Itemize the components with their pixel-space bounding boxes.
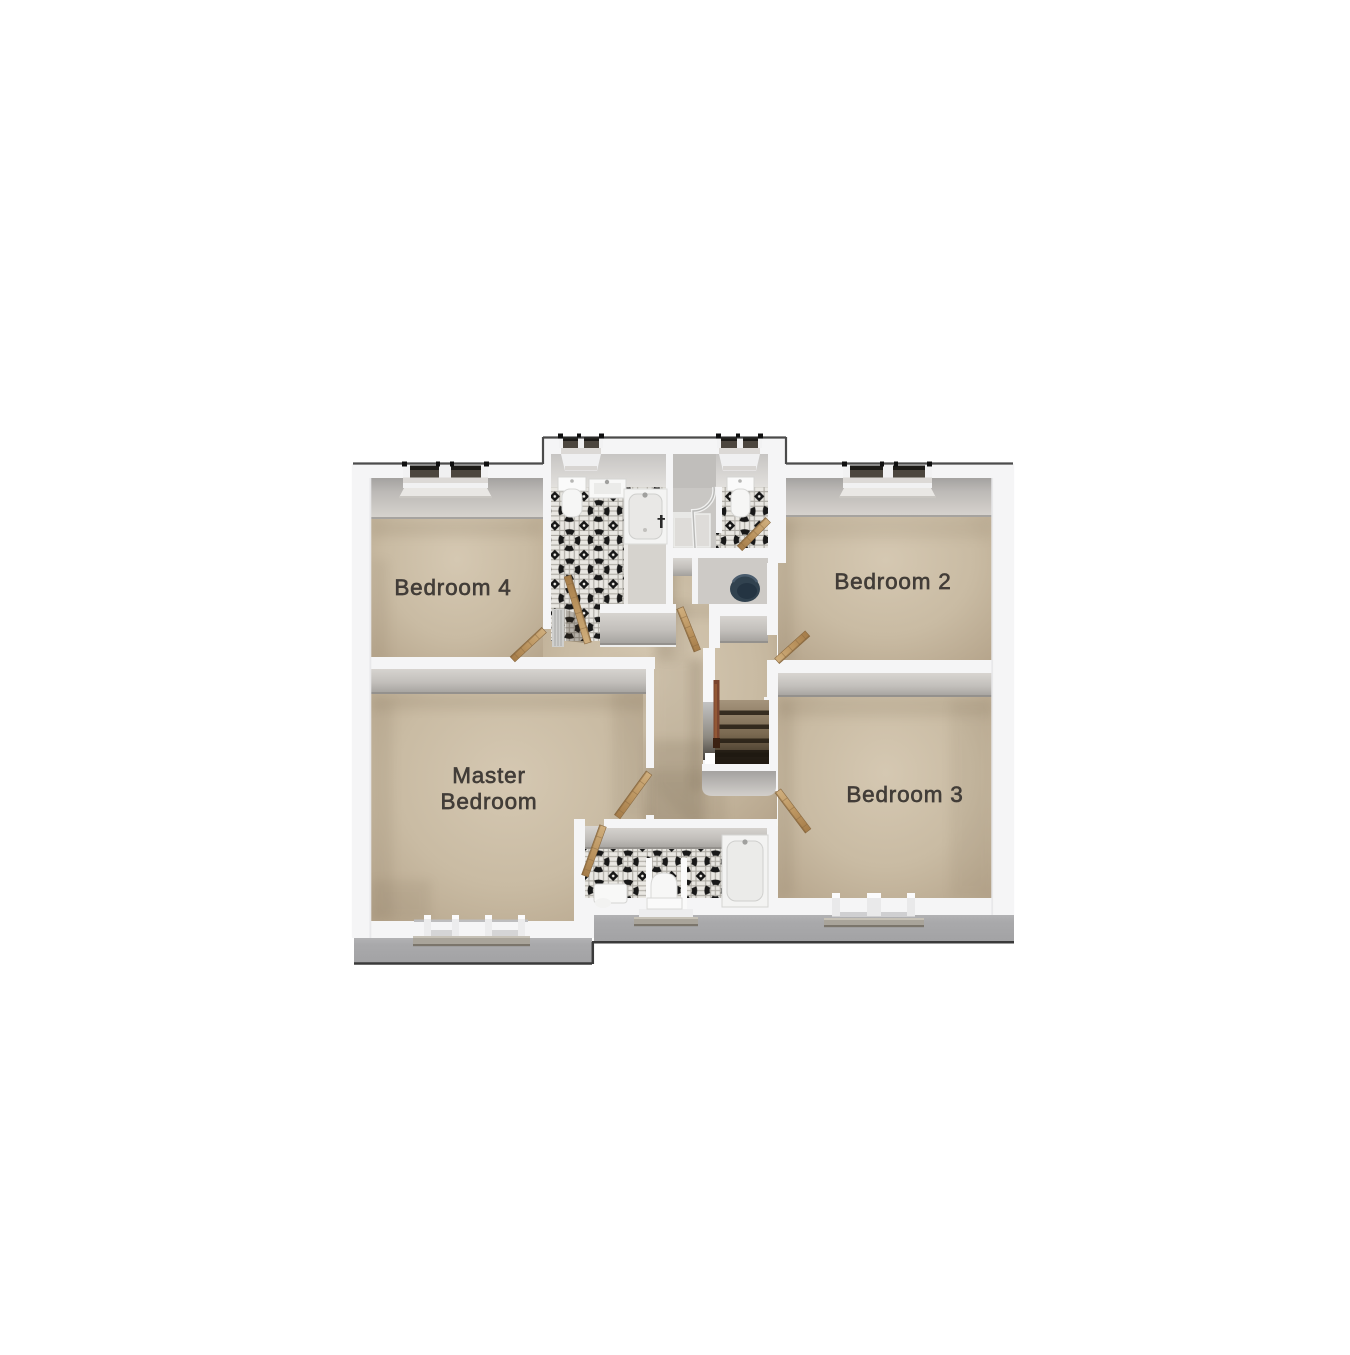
- svg-text:Bedroom 4: Bedroom 4: [394, 575, 511, 600]
- svg-text:Bedroom 3: Bedroom 3: [846, 782, 963, 807]
- svg-text:Bedroom 2: Bedroom 2: [834, 569, 951, 594]
- svg-text:Master: Master: [452, 763, 526, 788]
- svg-text:Bedroom: Bedroom: [441, 789, 538, 814]
